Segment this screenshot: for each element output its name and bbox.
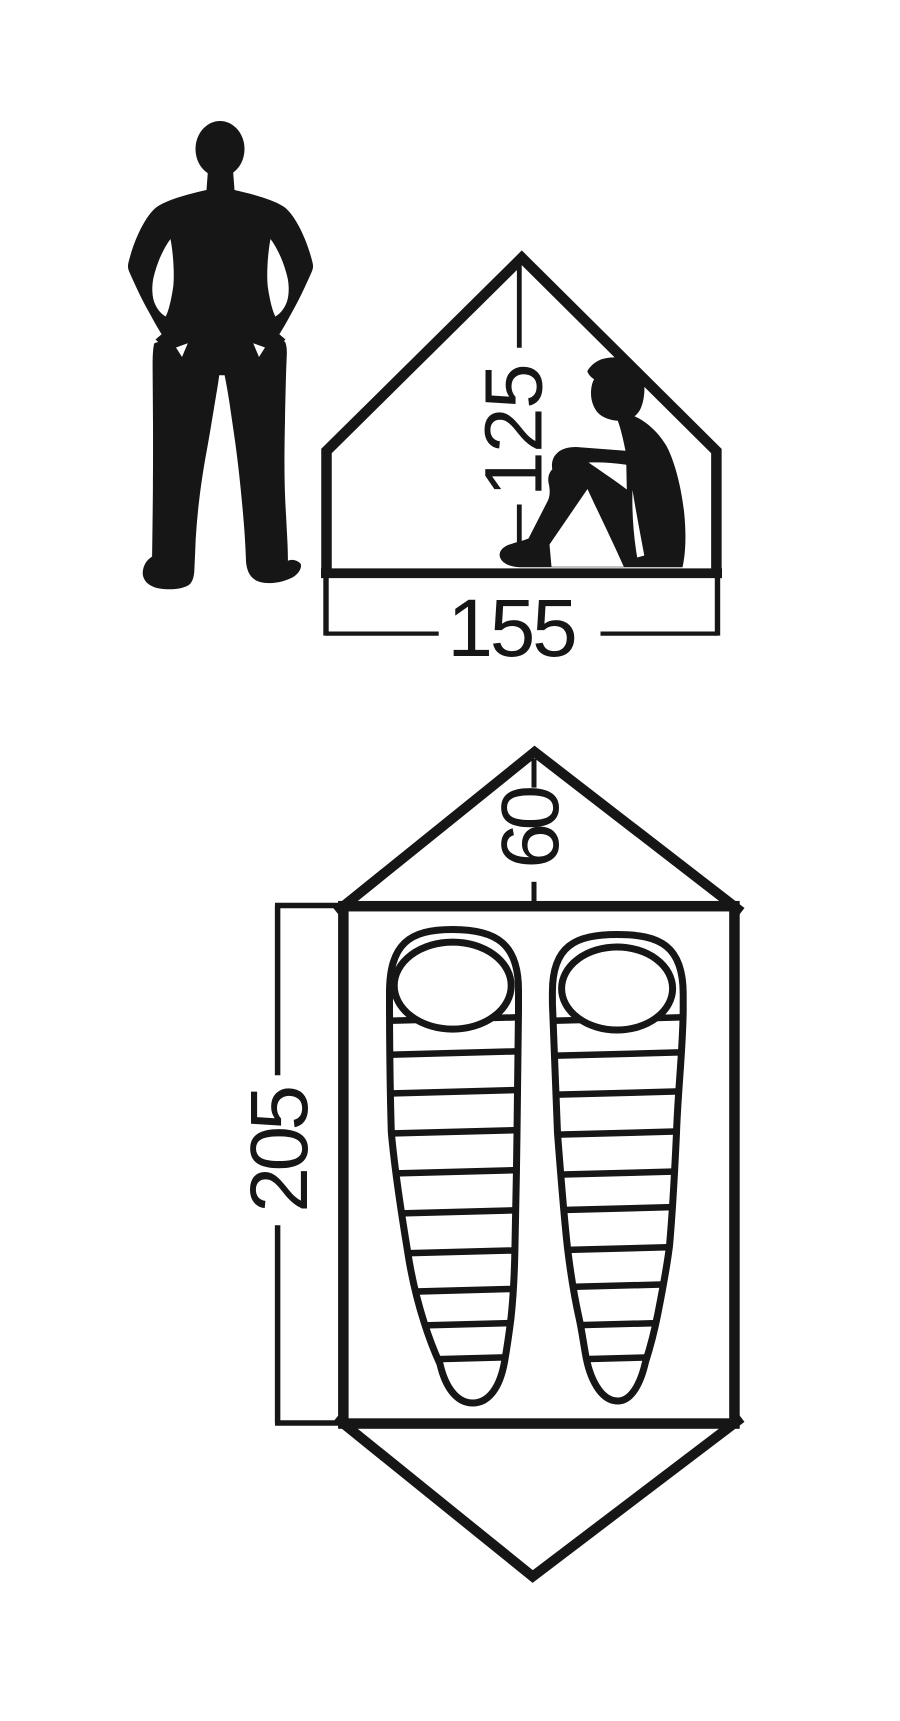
- svg-text:60: 60: [485, 788, 576, 869]
- svg-text:125: 125: [468, 365, 559, 497]
- svg-text:205: 205: [234, 1087, 325, 1212]
- svg-text:155: 155: [447, 583, 575, 674]
